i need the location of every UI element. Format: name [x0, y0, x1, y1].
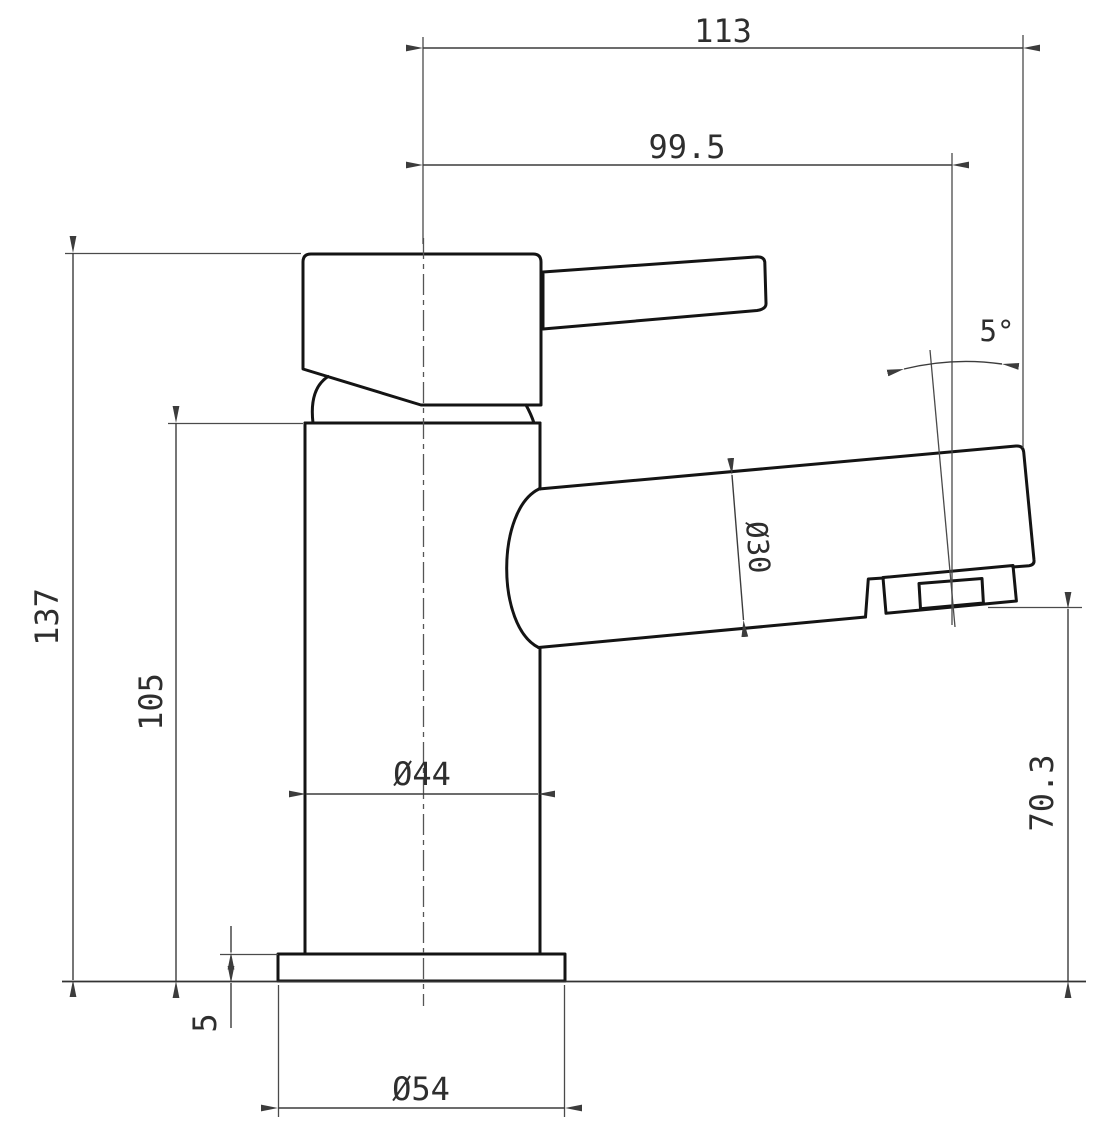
outlet-recess-notch — [866, 578, 884, 617]
overall-width-label: 113 — [694, 12, 752, 50]
lever-handle — [543, 257, 766, 329]
dimension-113: 113 — [423, 12, 1023, 50]
spout-top-and-tip — [539, 446, 1034, 567]
dimension-137: 137 — [28, 253, 73, 980]
spout-angle-reference-line — [930, 350, 955, 627]
spout-angle-label: 5° — [980, 314, 1015, 348]
spout-underside — [539, 617, 866, 648]
spout-back-bulge — [507, 489, 539, 648]
faucet-outline — [278, 254, 1034, 981]
faucet-dimension-drawing: 113 99.5 5° 137 105 Ø44 Ø30 70.3 5 Ø54 — [0, 0, 1120, 1121]
base-plate-thickness-label: 5 — [186, 1013, 224, 1032]
body-height-label: 105 — [132, 673, 170, 731]
dimension-5deg: 5° — [904, 314, 1014, 369]
dimension-105: 105 — [132, 423, 176, 981]
overall-height-label: 137 — [28, 588, 66, 646]
body-diameter-label: Ø44 — [393, 755, 451, 793]
outlet-height-label: 70.3 — [1023, 754, 1061, 831]
spout-reach-label: 99.5 — [648, 128, 725, 166]
spout-tube-diameter-label: Ø30 — [739, 520, 777, 575]
dimension-5mm: 5 — [186, 926, 231, 1033]
body-dome-left-arc — [312, 377, 328, 424]
technical-drawing-canvas: 113 99.5 5° 137 105 Ø44 Ø30 70.3 5 Ø54 — [0, 0, 1120, 1121]
dimension-70-3: 70.3 — [1023, 609, 1068, 981]
base-flange — [278, 954, 565, 981]
dimension-99-5: 99.5 — [423, 128, 952, 166]
dimension-dia54: Ø54 — [278, 1070, 565, 1108]
base-diameter-label: Ø54 — [392, 1070, 450, 1108]
body-dome-right-arc — [526, 405, 534, 423]
dimension-dia44: Ø44 — [306, 755, 538, 794]
extension-lines — [65, 35, 1082, 1117]
handle-block — [303, 254, 541, 405]
dimension-dia30: Ø30 — [732, 475, 777, 620]
